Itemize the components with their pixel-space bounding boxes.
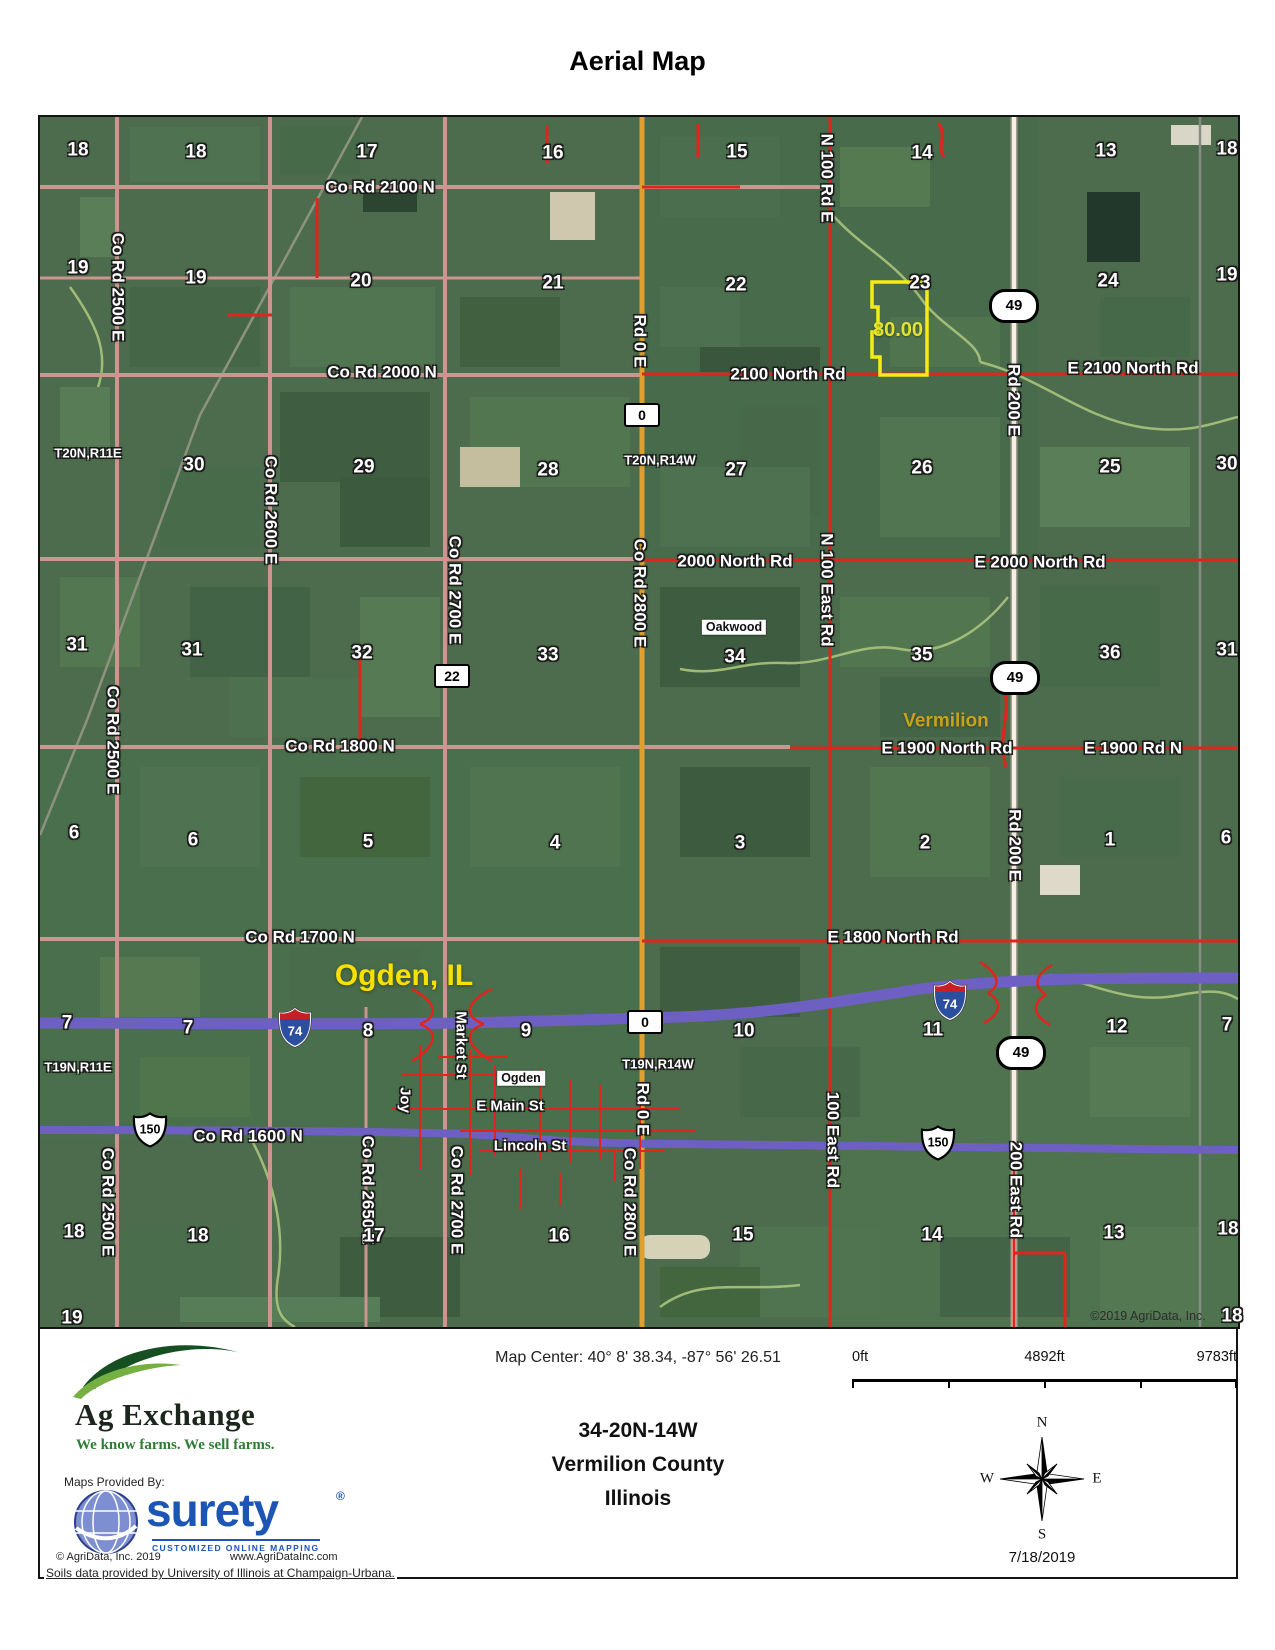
road-label: 100 East Rd: [825, 1092, 842, 1188]
section-number: 14: [911, 144, 932, 163]
section-number: 17: [356, 143, 377, 162]
road-label: Market St: [454, 1011, 469, 1079]
compass-east-label: E: [1092, 1471, 1101, 1488]
ag-exchange-wordmark: Ag Exchange: [75, 1397, 255, 1433]
road-label: Rd 0 E: [632, 315, 649, 368]
township-label: T20N,R14W: [624, 454, 696, 467]
aerial-map-report-page: Aerial Map: [0, 0, 1275, 1650]
township-label: T20N,R11E: [54, 447, 121, 460]
route-49-shield-icon: 49: [989, 289, 1039, 323]
us-150-shield-icon: 150: [919, 1125, 957, 1166]
section-number: 18: [67, 141, 88, 160]
section-number: 22: [725, 276, 746, 295]
section-number: 16: [548, 1227, 569, 1246]
svg-text:150: 150: [928, 1136, 949, 1150]
ag-exchange-tagline: We know farms. We sell farms.: [76, 1437, 274, 1454]
road-label: E 1900 Rd N: [1084, 740, 1182, 757]
section-number: 6: [69, 824, 80, 843]
section-number: 31: [1216, 641, 1237, 660]
section-number: 18: [187, 1227, 208, 1246]
section-number: 30: [1216, 455, 1237, 474]
compass-south-label: S: [1038, 1527, 1046, 1544]
page-title: Aerial Map: [0, 46, 1275, 77]
section-number: 20: [350, 272, 371, 291]
section-number: 4: [550, 834, 561, 853]
section-number: 14: [921, 1226, 942, 1245]
section-number: 7: [62, 1014, 73, 1033]
section-number: 34: [724, 648, 745, 667]
section-number: 18: [1221, 1307, 1242, 1326]
route-0-shield-icon: 0: [624, 403, 660, 427]
section-number: 19: [67, 259, 88, 278]
road-label: Co Rd 2500 E: [105, 686, 122, 795]
interstate-74-shield-icon: 74: [277, 1007, 313, 1054]
surety-wordmark: surety: [146, 1483, 278, 1537]
section-number: 18: [1217, 1220, 1238, 1239]
section-number: 18: [1216, 140, 1237, 159]
registered-mark: ®: [336, 1489, 345, 1503]
road-label: 2100 North Rd: [730, 366, 845, 383]
section-number: 7: [1222, 1016, 1233, 1035]
section-number: 18: [63, 1223, 84, 1242]
section-number: 19: [185, 269, 206, 288]
road-label: Co Rd 2700 E: [449, 1146, 466, 1255]
road-label: Rd 200 E: [1006, 364, 1023, 436]
section-number: 3: [735, 834, 746, 853]
section-number: 5: [363, 833, 374, 852]
section-number: 12: [1106, 1018, 1127, 1037]
road-label: Co Rd 1700 N: [245, 929, 355, 946]
svg-text:74: 74: [288, 1024, 303, 1039]
town-label: Oakwood: [702, 620, 766, 635]
road-label: Joy: [398, 1087, 413, 1113]
section-number: 35: [911, 646, 932, 665]
road-label: N 100 East Rd: [819, 533, 836, 646]
interstate-74-shield-icon: 74: [932, 980, 968, 1027]
road-label: 2000 North Rd: [677, 553, 792, 570]
section-number: 17: [363, 1227, 384, 1246]
map-copyright: ©2019 AgriData, Inc.: [1090, 1310, 1206, 1323]
road-label: Co Rd 2000 N: [327, 364, 437, 381]
road-label: Co Rd 2500 E: [110, 233, 127, 342]
road-label: Rd 200 E: [1007, 809, 1024, 881]
svg-text:150: 150: [140, 1123, 161, 1137]
compass-west-label: W: [980, 1471, 994, 1488]
section-number: 9: [521, 1022, 532, 1041]
section-number: 25: [1099, 458, 1120, 477]
aerial-map: Co Rd 2100 NCo Rd 2000 N2100 North RdE 2…: [38, 115, 1240, 1329]
section-number: 10: [733, 1022, 754, 1041]
road-label: Co Rd 2100 N: [325, 179, 435, 196]
section-number: 27: [725, 461, 746, 480]
road-label: E 1900 North Rd: [881, 740, 1012, 757]
route-49-shield-icon: 49: [990, 661, 1040, 695]
surety-globe-icon: [68, 1489, 144, 1555]
road-label: E 1800 North Rd: [827, 929, 958, 946]
section-number: 13: [1103, 1224, 1124, 1243]
agridata-copyright: © AgriData, Inc. 2019: [56, 1551, 161, 1563]
us-150-shield-icon: 150: [131, 1112, 169, 1153]
route-0-shield-icon: 0: [627, 1010, 663, 1034]
scale-bar: 0ft 4892ft 9783ft: [852, 1349, 1237, 1395]
soils-attribution-link[interactable]: Soils data provided by University of Ill…: [44, 1566, 397, 1580]
road-label: E Main St: [476, 1099, 544, 1114]
section-number: 1: [1105, 831, 1116, 850]
section-number: 18: [185, 143, 206, 162]
route-22-shield-icon: 22: [434, 664, 470, 688]
map-label-overlay: Co Rd 2100 NCo Rd 2000 N2100 North RdE 2…: [40, 117, 1238, 1327]
town-label: Ogden, IL: [335, 961, 473, 991]
parcel-acreage-label: 80.00: [873, 320, 923, 340]
section-number: 30: [183, 456, 204, 475]
report-date: 7/18/2019: [972, 1549, 1112, 1566]
road-label: E 2100 North Rd: [1067, 360, 1198, 377]
compass-north-label: N: [1037, 1415, 1048, 1432]
route-49-shield-icon: 49: [996, 1036, 1046, 1070]
road-label: Co Rd 1800 N: [285, 738, 395, 755]
road-label: Co Rd 1600 N: [193, 1128, 303, 1145]
section-number: 16: [542, 144, 563, 163]
compass-rose: N E S W: [972, 1409, 1112, 1549]
ag-exchange-swoosh-icon: [65, 1335, 315, 1399]
road-label: Lincoln St: [494, 1139, 567, 1154]
section-number: 15: [732, 1226, 753, 1245]
section-number: 23: [909, 274, 930, 293]
section-number: 6: [1221, 829, 1232, 848]
road-label: Rd 0 E: [635, 1083, 652, 1136]
road-label: Co Rd 2800 E: [622, 1148, 639, 1257]
agridata-url-link[interactable]: www.AgriDataInc.com: [230, 1551, 338, 1563]
road-label: Co Rd 2700 E: [447, 536, 464, 645]
township-label: T19N,R14W: [622, 1058, 694, 1071]
section-number: 31: [181, 641, 202, 660]
footer-panel: Map Center: 40° 8' 38.34, -87° 56' 26.51…: [38, 1327, 1238, 1579]
road-label: E 2000 North Rd: [974, 554, 1105, 571]
road-label: Co Rd 2500 E: [100, 1148, 117, 1257]
section-number: 2: [920, 834, 931, 853]
section-number: 33: [537, 646, 558, 665]
road-label: Co Rd 2600 E: [263, 456, 280, 565]
scale-label-max: 9783ft: [1197, 1349, 1237, 1365]
road-label: 200 East Rd: [1008, 1142, 1025, 1238]
section-number: 8: [363, 1022, 374, 1041]
ag-exchange-logo: Ag Exchange We know farms. We sell farms…: [65, 1335, 365, 1470]
section-number: 28: [537, 461, 558, 480]
svg-text:74: 74: [943, 997, 958, 1012]
town-label: Vermilion: [903, 712, 989, 731]
section-number: 7: [183, 1019, 194, 1038]
section-number: 31: [66, 636, 87, 655]
township-label: T19N,R11E: [44, 1061, 111, 1074]
section-number: 19: [61, 1309, 82, 1328]
road-label: Co Rd 2800 E: [632, 539, 649, 648]
section-number: 21: [542, 274, 563, 293]
scale-label-0: 0ft: [852, 1349, 868, 1365]
section-number: 24: [1097, 272, 1118, 291]
town-label: Ogden: [497, 1071, 545, 1086]
section-number: 26: [911, 459, 932, 478]
section-number: 32: [351, 644, 372, 663]
section-number: 13: [1095, 142, 1116, 161]
section-number: 6: [188, 831, 199, 850]
road-label: N 100 Rd E: [819, 134, 836, 223]
section-number: 29: [353, 458, 374, 477]
scale-label-mid: 4892ft: [1024, 1349, 1064, 1365]
section-number: 36: [1099, 644, 1120, 663]
surety-logo: surety ® CUSTOMIZED ONLINE MAPPING: [68, 1489, 398, 1551]
section-number: 15: [726, 143, 747, 162]
section-number: 19: [1216, 266, 1237, 285]
